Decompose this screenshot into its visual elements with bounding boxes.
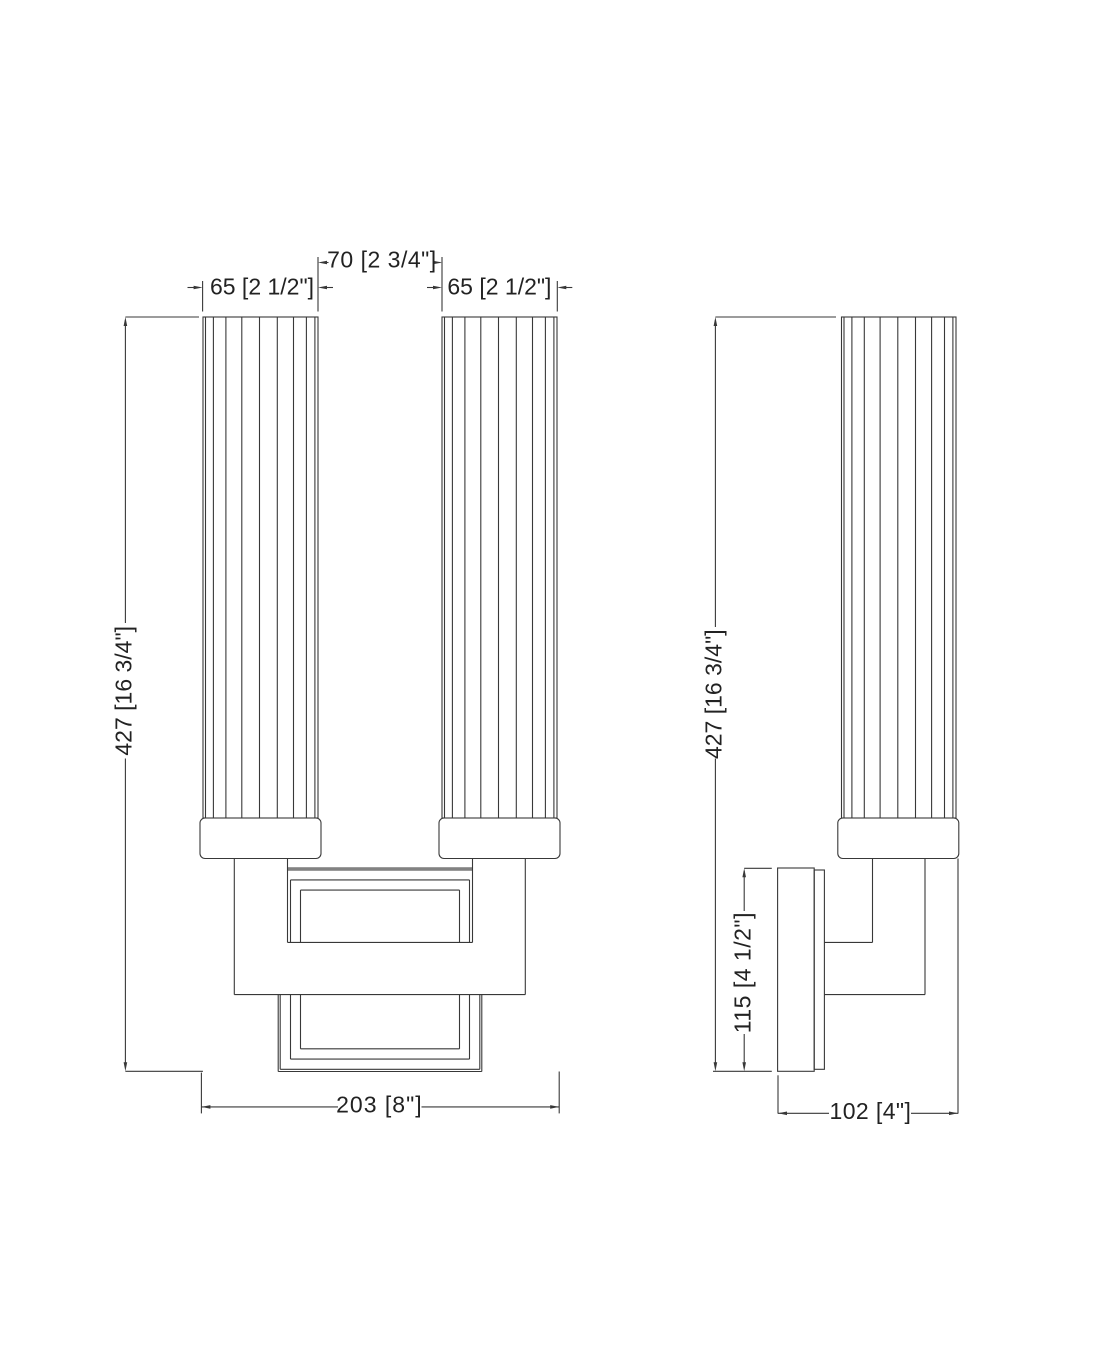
svg-text:427 [16 3/4"]: 427 [16 3/4"] bbox=[700, 629, 726, 759]
svg-text:102 [4"]: 102 [4"] bbox=[830, 1098, 912, 1124]
svg-text:427 [16 3/4"]: 427 [16 3/4"] bbox=[111, 626, 137, 756]
svg-text:203 [8"]: 203 [8"] bbox=[336, 1092, 423, 1118]
svg-text:115 [4 1/2"]: 115 [4 1/2"] bbox=[729, 912, 755, 1033]
svg-text:65 [2 1/2"]: 65 [2 1/2"] bbox=[210, 273, 314, 299]
svg-text:65 [2 1/2"]: 65 [2 1/2"] bbox=[447, 273, 551, 299]
svg-text:70 [2 3/4"]: 70 [2 3/4"] bbox=[327, 247, 437, 273]
